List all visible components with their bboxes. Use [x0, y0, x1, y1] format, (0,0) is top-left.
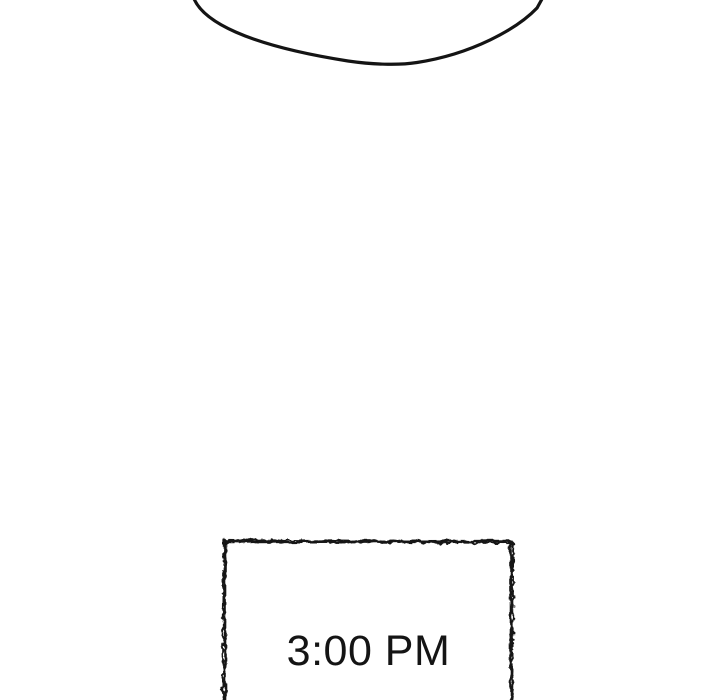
- time-label: 3:00 PM: [225, 628, 512, 674]
- time-box-border: [0, 0, 720, 700]
- comic-panel: 3:00 PM: [0, 0, 720, 700]
